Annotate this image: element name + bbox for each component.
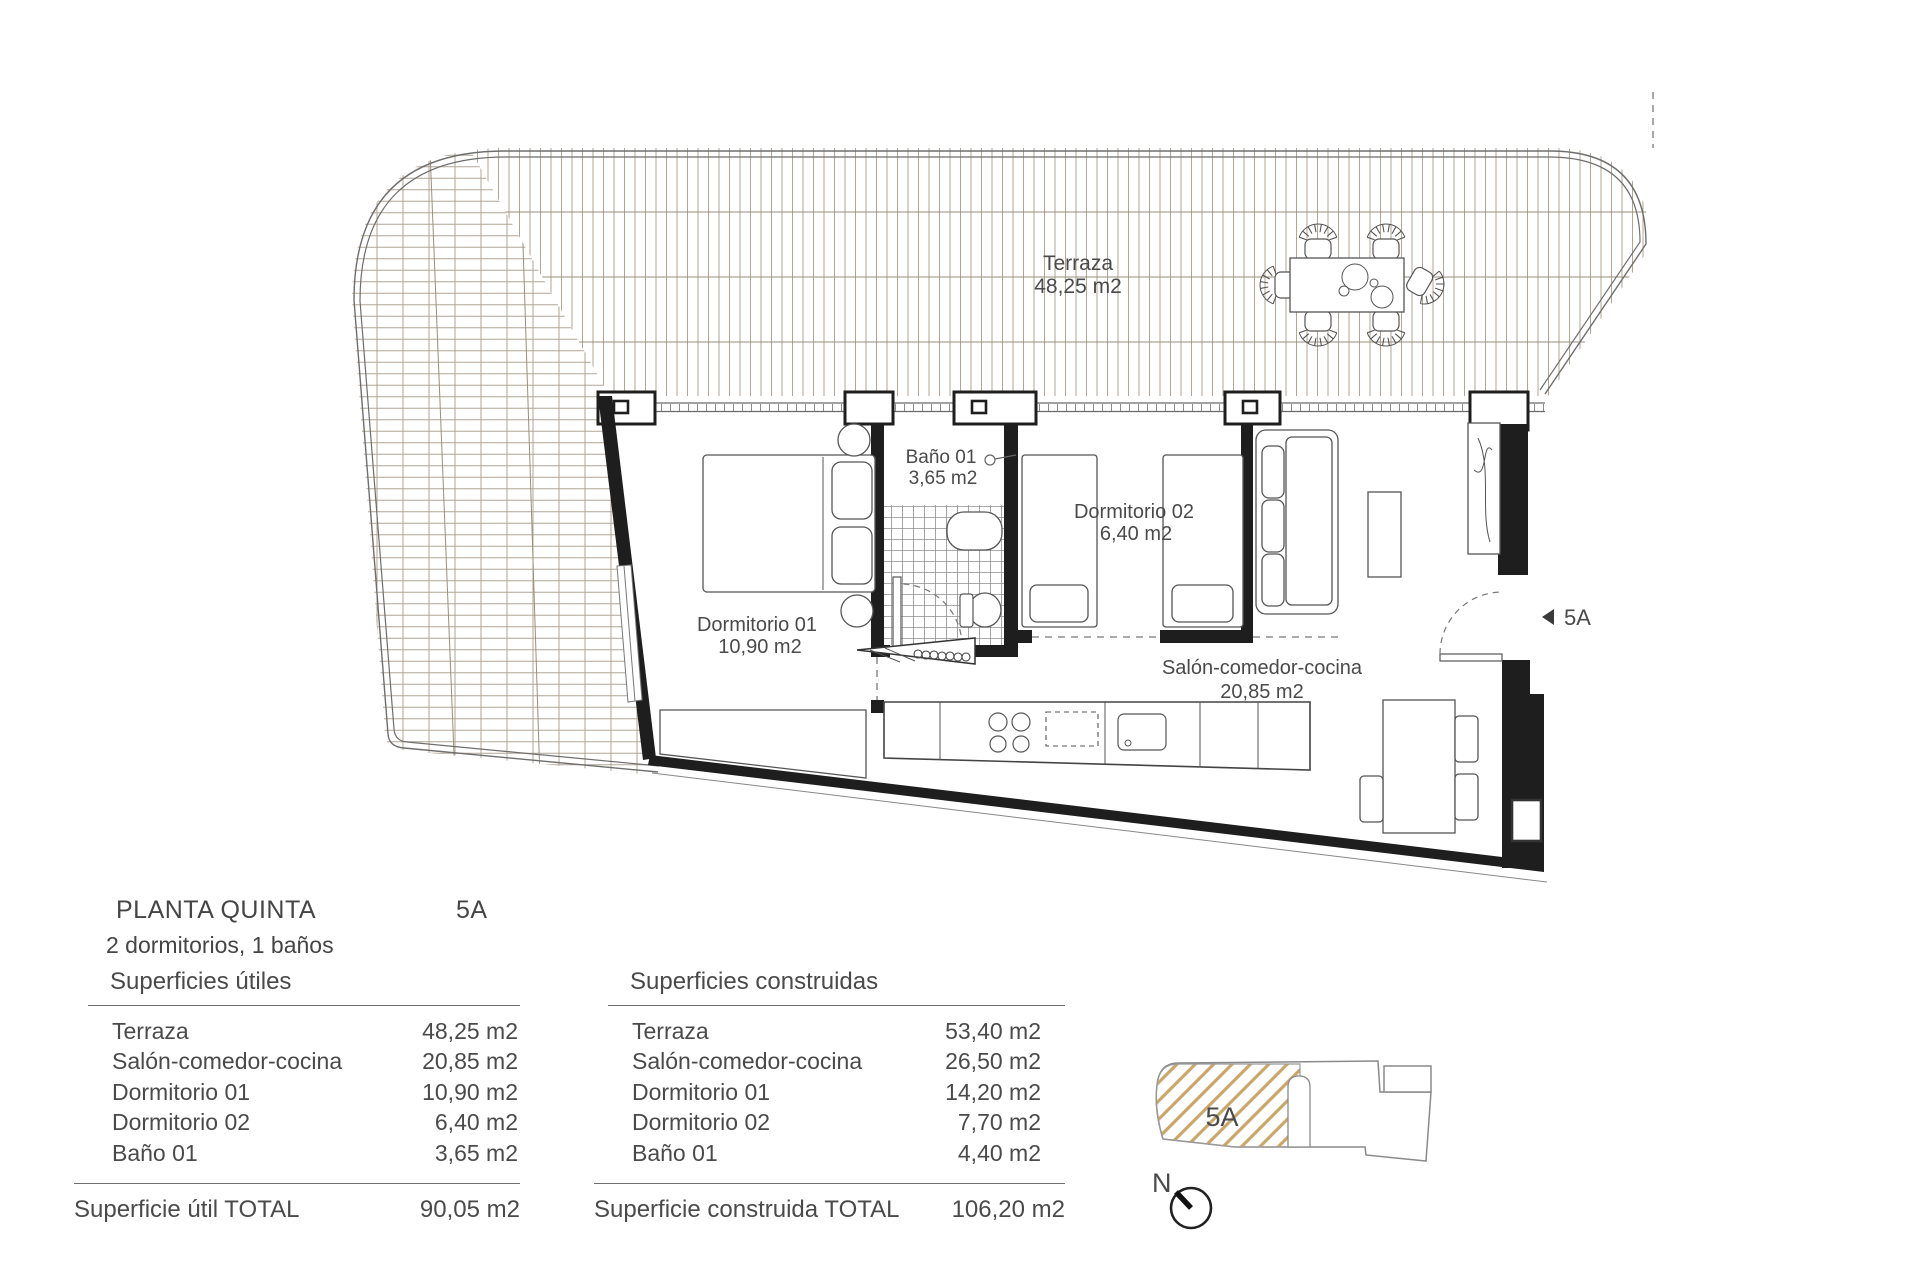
row-label: Dormitorio 02 [632,1109,770,1136]
terrace-label: Terraza [1043,252,1113,275]
floor-title: PLANTA QUINTA [116,896,316,924]
useful-table-rows: Terraza 48,25 m2 Salón-comedor-cocina 20… [88,1006,520,1169]
chair [1455,716,1478,762]
north-compass: N [1152,1168,1211,1228]
coffee-table [1368,492,1401,577]
stair-core [1288,1076,1310,1147]
unit-label: 5A [456,896,488,925]
row-value: 4,40 m2 [958,1140,1041,1167]
table-row: Terraza 48,25 m2 [112,1016,518,1047]
row-label: Baño 01 [112,1140,198,1167]
table-row: Dormitorio 02 7,70 m2 [632,1108,1041,1139]
bedroom2-label: Dormitorio 02 [1074,501,1194,523]
row-value: 6,40 m2 [435,1109,518,1136]
row-label: Terraza [112,1018,189,1045]
total-value: 90,05 m2 [420,1196,520,1224]
table-row: Dormitorio 01 14,20 m2 [632,1077,1041,1108]
bedroom1-label: Dormitorio 01 [697,614,817,636]
table-row: Salón-comedor-cocina 26,50 m2 [632,1047,1041,1078]
useful-total-row: Superficie útil TOTAL 90,05 m2 [74,1183,520,1224]
row-value: 26,50 m2 [945,1048,1041,1075]
plan-info-block: PLANTA QUINTA 5A 2 dormitorios, 1 baños [88,896,608,959]
built-table-rows: Terraza 53,40 m2 Salón-comedor-cocina 26… [608,1006,1065,1169]
table-row: Dormitorio 01 10,90 m2 [112,1077,518,1108]
nightstand [838,424,870,456]
row-value: 10,90 m2 [422,1079,518,1106]
row-label: Salón-comedor-cocina [632,1048,862,1075]
toilet [969,593,1001,627]
table-row: Terraza 53,40 m2 [632,1016,1041,1047]
unit-marker: 5A [1542,605,1591,630]
chair [1455,774,1478,820]
useful-table-title: Superficies útiles [88,968,520,1006]
program-label: 2 dormitorios, 1 baños [106,932,608,959]
terrace-area: 48,25 m2 [1034,275,1122,298]
compass-needle-icon [1176,1192,1191,1208]
row-label: Salón-comedor-cocina [112,1048,342,1075]
north-label: N [1152,1168,1172,1198]
built-areas-table: Superficies construidas Terraza 53,40 m2… [608,968,1065,1224]
row-label: Dormitorio 01 [632,1079,770,1106]
row-value: 14,20 m2 [945,1079,1041,1106]
bedroom1-furniture [660,424,875,778]
tv-unit [1468,423,1500,554]
row-value: 7,70 m2 [958,1109,1041,1136]
door-swing [1440,592,1502,654]
row-value: 3,65 m2 [435,1140,518,1167]
row-label: Baño 01 [632,1140,718,1167]
row-label: Dormitorio 02 [112,1109,250,1136]
dining-table [1383,700,1455,833]
bedroom2-area: 6,40 m2 [1100,523,1172,545]
column [1512,800,1541,841]
built-total-row: Superficie construida TOTAL 106,20 m2 [594,1183,1065,1224]
table-row: Salón-comedor-cocina 20,85 m2 [112,1047,518,1078]
floor-plan-drawing: 5A Terraza 48,25 m2 Baño 01 3,65 m2 Dorm… [0,0,1920,900]
bathtub [947,512,1002,550]
key-plan: 5A N [1100,1040,1500,1250]
living-label: Salón-comedor-cocina [1162,657,1363,679]
table-row: Baño 01 4,40 m2 [632,1138,1041,1169]
row-label: Terraza [632,1018,709,1045]
bath-area: 3,65 m2 [909,468,978,489]
table-row: Baño 01 3,65 m2 [112,1138,518,1169]
row-value: 48,25 m2 [422,1018,518,1045]
built-table-title: Superficies construidas [608,968,1065,1006]
living-furniture [1256,423,1541,841]
nightstand [841,595,873,627]
entrance-arrow-icon [1542,609,1554,625]
total-label: Superficie útil TOTAL [74,1196,299,1224]
living-area: 20,85 m2 [1220,681,1303,703]
useful-areas-table: Superficies útiles Terraza 48,25 m2 Saló… [88,968,520,1224]
pillow [1030,585,1088,622]
chair [1360,776,1383,822]
pillow [1172,585,1233,622]
total-label: Superficie construida TOTAL [594,1196,899,1224]
entrance-door [1440,592,1502,661]
pillow [832,527,872,584]
unit-marker-label: 5A [1564,605,1591,630]
plan-info-title-row: PLANTA QUINTA 5A [88,896,608,925]
row-value: 20,85 m2 [422,1048,518,1075]
door-leaf [1440,654,1502,661]
row-label: Dormitorio 01 [112,1079,250,1106]
row-value: 53,40 m2 [945,1018,1041,1045]
table-row: Dormitorio 02 6,40 m2 [112,1108,518,1139]
terrace-decking [346,146,1660,786]
window-band [648,403,1545,412]
bath-label: Baño 01 [906,447,977,468]
terrace-table [1290,258,1404,312]
bedroom1-area: 10,90 m2 [718,636,801,658]
total-value: 106,20 m2 [952,1196,1065,1224]
pillow [832,462,872,519]
bath-door-leaf [893,577,901,647]
keyplan-unit-label: 5A [1205,1102,1238,1132]
